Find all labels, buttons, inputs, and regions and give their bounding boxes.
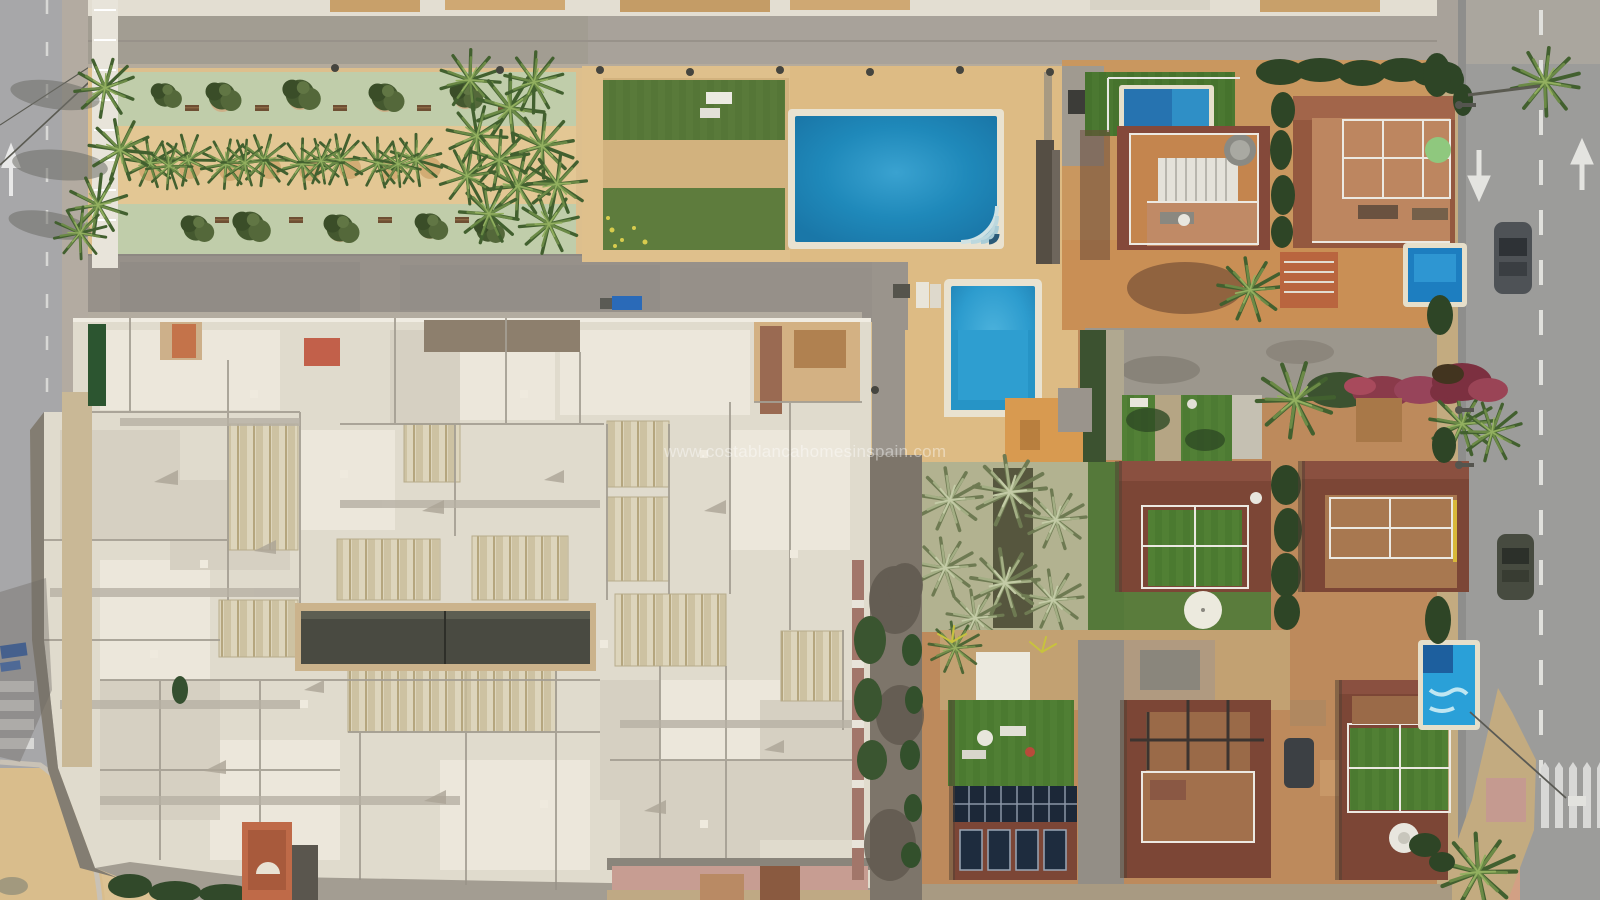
svg-text:www.costablancahomesinspain.co: www.costablancahomesinspain.com: [663, 442, 946, 461]
